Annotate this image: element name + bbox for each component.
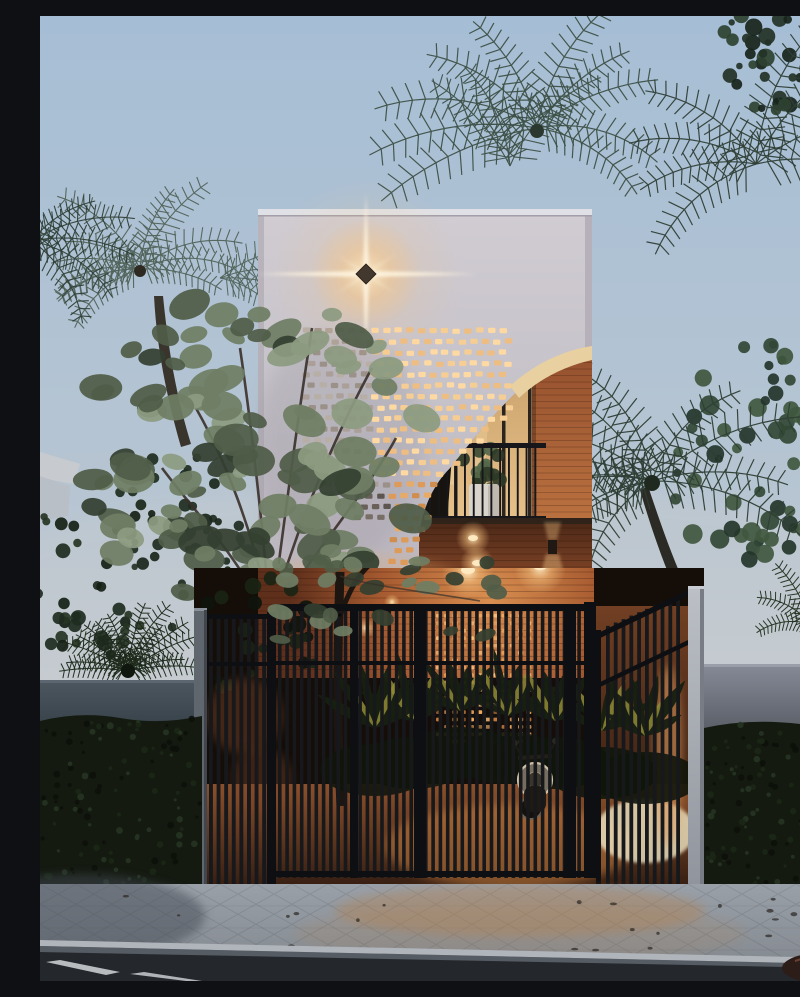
photo-architectural-render (40, 16, 800, 981)
gate-pillar (688, 586, 704, 894)
hedge-right (704, 722, 800, 898)
hedge-left (40, 715, 202, 896)
scene-render (40, 16, 800, 981)
